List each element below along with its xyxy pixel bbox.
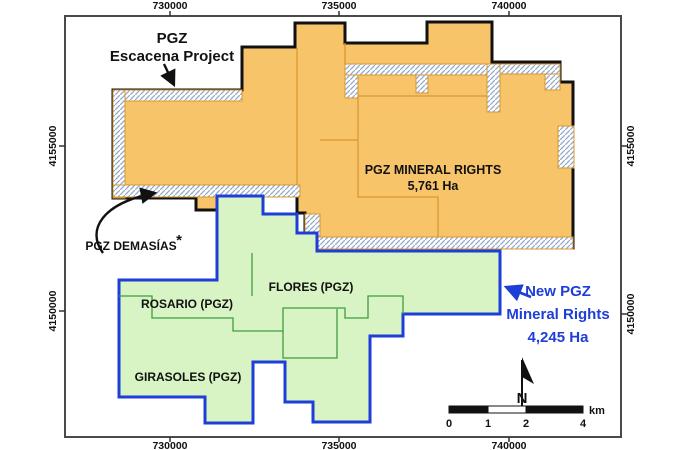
north-arrow: N [517,357,534,407]
axis-bottom-730000: 730000 [152,440,187,450]
hatch-block-3 [487,64,500,112]
axis-top-730000: 730000 [152,0,187,12]
scale-unit-label: km [589,405,605,417]
rosario-parcel-label: ROSARIO (PGZ) [141,297,233,311]
scale-tick-2: 2 [523,418,529,430]
hatch-left-band [113,90,125,198]
scale-tick-1: 1 [485,418,491,430]
axis-right-4155000: 4155000 [625,125,637,166]
flores-parcel-label: FLORES (PGZ) [269,280,354,294]
axis-top-740000: 740000 [491,0,526,12]
escacena-project-arrow [164,64,174,85]
axis-bottom-740000: 740000 [491,440,526,450]
new-rights-label-line1: New PGZ [525,283,591,300]
axis-left-4155000: 4155000 [47,125,59,166]
mineral-rights-label: PGZ MINERAL RIGHTS [365,163,502,177]
hatch-topright-band [500,64,560,74]
axis-right-4150000: 4150000 [625,293,637,334]
project-title-line2: Escacena Project [110,48,234,65]
hatch-block-2 [416,75,428,93]
escacena-project-map: PGZ Escacena Project PGZ MINERAL RIGHTS … [0,0,690,450]
hatch-block-1 [345,75,358,98]
hatch-bottom-band [305,237,573,249]
new-rights-label-line2: Mineral Rights [506,306,609,323]
new-rights-area-value: 4,245 Ha [528,329,590,346]
mineral-rights-area-value: 5,761 Ha [408,179,460,193]
axis-top-735000: 735000 [321,0,356,12]
demasias-label: PGZ DEMASÍAS [85,238,176,253]
map-figure: PGZ Escacena Project PGZ MINERAL RIGHTS … [0,0,690,450]
girasoles-parcel-label: GIRASOLES (PGZ) [135,370,242,384]
hatch-mid-band [345,64,490,75]
project-title-line1: PGZ [157,30,188,47]
hatch-topleft-band [125,90,242,101]
scale-tick-0: 0 [446,418,452,430]
scale-bar: 0 1 2 4 km [446,405,605,430]
scale-tick-4: 4 [580,418,587,430]
hatch-right-block [558,126,574,168]
north-arrow-letter: N [517,390,528,407]
axis-left-4150000: 4150000 [47,290,59,331]
demasias-asterisk: * [176,232,182,249]
axis-bottom-735000: 735000 [321,440,356,450]
hatch-block-4 [545,74,560,90]
north-arrow-head [522,357,534,384]
